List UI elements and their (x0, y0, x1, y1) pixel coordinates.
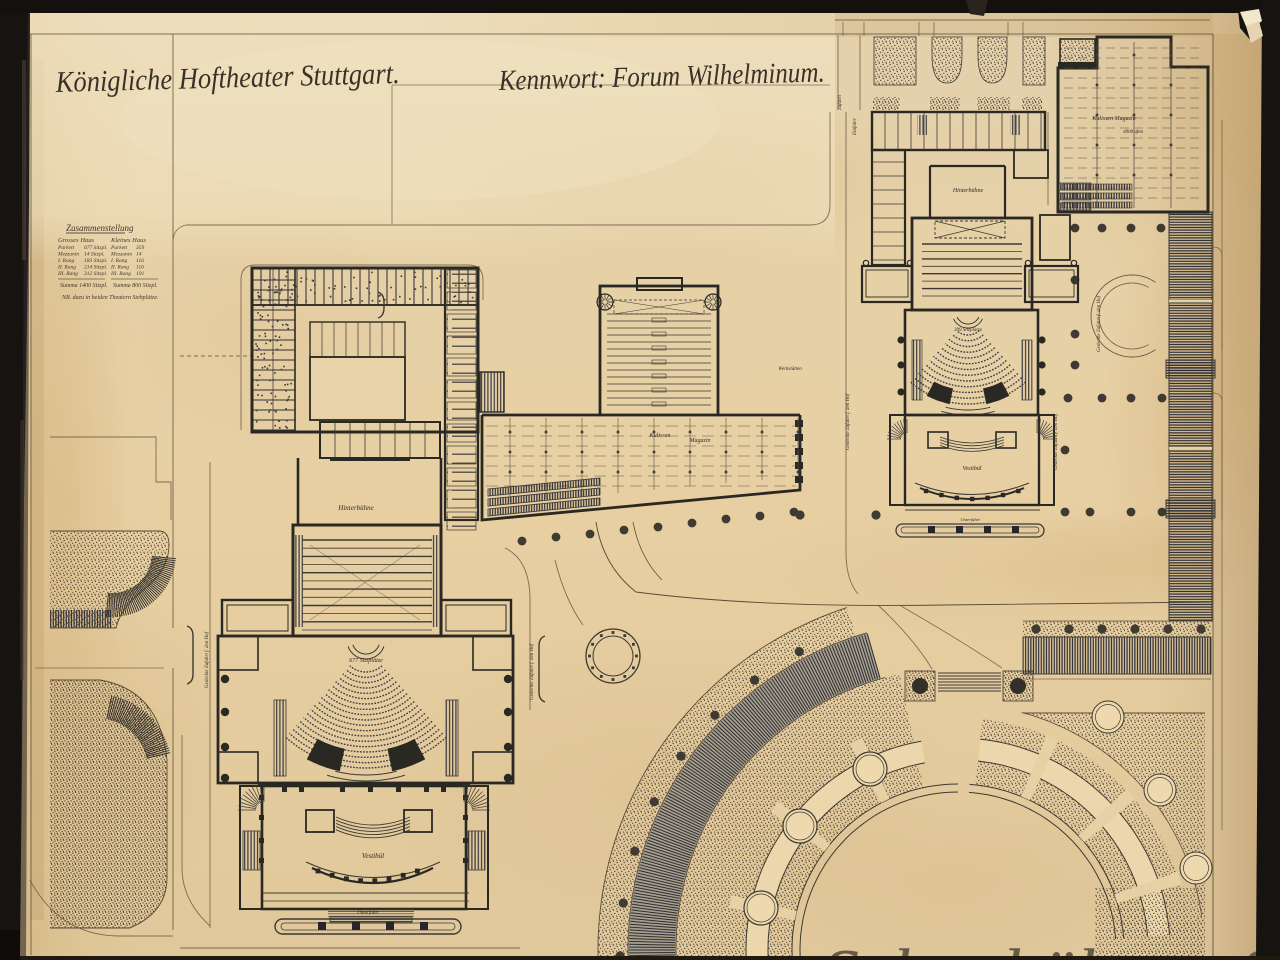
svg-text:III. Rang: III. Rang (57, 271, 78, 277)
svg-text:Mezzanin: Mezzanin (110, 252, 132, 258)
svg-text:116: 116 (136, 258, 144, 264)
svg-text:Grosses Haus: Grosses Haus (58, 237, 95, 244)
svg-text:I. Rang: I. Rang (57, 258, 74, 264)
svg-text:I. Rang: I. Rang (110, 258, 127, 264)
svg-text:Parkett: Parkett (110, 245, 128, 251)
svg-text:Summa 1400 Sitzpl.: Summa 1400 Sitzpl. (60, 282, 108, 289)
svg-text:Kulissen: Kulissen (649, 433, 671, 439)
svg-text:399 Sitzplätze: 399 Sitzplätze (954, 328, 983, 333)
svg-text:Gedeckte Zufahrt f. den Hof: Gedeckte Zufahrt f. den Hof (846, 393, 851, 450)
svg-text:Vestibül: Vestibül (362, 852, 384, 860)
svg-text:677 Sitzpl.: 677 Sitzpl. (84, 245, 107, 251)
svg-text:Vestibül: Vestibül (963, 466, 982, 472)
svg-text:Hinterbühne: Hinterbühne (337, 504, 373, 512)
svg-text:Gedeckte Zufahrt f. den Hof: Gedeckte Zufahrt f. den Hof (205, 631, 210, 688)
svg-text:Summa 800 Sitzpl.: Summa 800 Sitzpl. (113, 283, 158, 289)
svg-text:Zufahrt: Zufahrt (838, 94, 843, 110)
svg-text:II. Rang: II. Rang (110, 265, 129, 271)
svg-text:677 Sitzplätze: 677 Sitzplätze (349, 658, 383, 664)
svg-text:359: 359 (135, 245, 145, 251)
svg-text:Einfahrt: Einfahrt (853, 118, 858, 136)
svg-text:Unterfahrt: Unterfahrt (357, 911, 379, 916)
svg-text:14: 14 (136, 251, 142, 258)
svg-text:Gedeckte Zufahrt f. den Hof: Gedeckte Zufahrt f. den Hof (1097, 295, 1102, 352)
svg-text:191: 191 (136, 271, 145, 277)
svg-text:4000 qbm: 4000 qbm (1123, 130, 1143, 135)
svg-text:Magazin: Magazin (689, 438, 711, 444)
svg-text:Werkstätten: Werkstätten (778, 367, 802, 372)
svg-text:183 Sitzpl.: 183 Sitzpl. (84, 258, 107, 264)
svg-text:III. Rang: III. Rang (110, 271, 131, 277)
svg-text:Mezzanin: Mezzanin (57, 252, 79, 258)
svg-text:116: 116 (136, 265, 144, 271)
svg-text:Gedeckte Zufahrt f. den Hof: Gedeckte Zufahrt f. den Hof (530, 643, 535, 700)
svg-text:Hinterbühne: Hinterbühne (952, 188, 984, 194)
svg-text:Zusammenstellung: Zusammenstellung (66, 223, 134, 233)
svg-text:14 Sitzpl.: 14 Sitzpl. (84, 251, 104, 258)
svg-text:NB. dazu in beiden Theatern St: NB. dazu in beiden Theatern Stehplätze. (61, 295, 159, 301)
svg-text:214 Sitzpl.: 214 Sitzpl. (84, 264, 107, 271)
svg-text:Kulissen Magazin: Kulissen Magazin (1091, 116, 1135, 122)
svg-text:Parkett: Parkett (57, 245, 75, 251)
svg-text:II. Rang: II. Rang (57, 265, 76, 271)
svg-text:312 Sitzpl.: 312 Sitzpl. (83, 271, 107, 277)
svg-text:Unterfahrt: Unterfahrt (960, 517, 980, 522)
svg-text:Kleines Haus: Kleines Haus (110, 237, 146, 244)
svg-text:Gedeckte Zufahrt f. den Hof: Gedeckte Zufahrt f. den Hof (1054, 413, 1059, 470)
